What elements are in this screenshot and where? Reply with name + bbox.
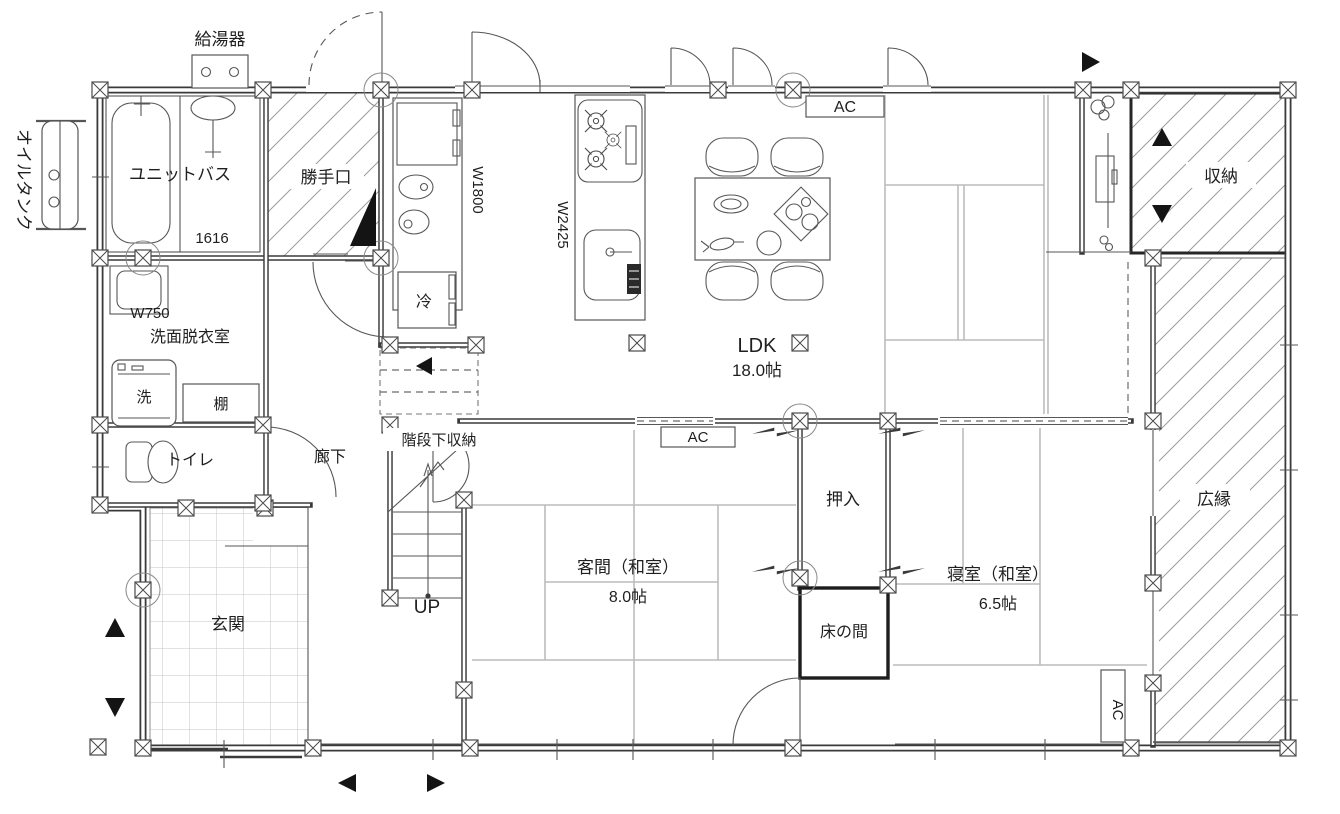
kaidan-shita-label: 階段下収納 (401, 432, 476, 449)
wash-counter-dim: W1800 (469, 166, 486, 214)
ac-label-top: AC (834, 99, 856, 116)
appliance-icon (397, 103, 457, 165)
floor-plan-drawing: オイルタンク 給湯器 ユニットバス 1616 勝手口 W1800 W2425 冷… (0, 0, 1340, 814)
ldk-size: 18.0帖 (732, 361, 782, 380)
kitchen-counter-dim: W2425 (554, 201, 571, 249)
refrigerator-label: 冷 (416, 293, 432, 311)
oil-tank (36, 121, 86, 229)
rouka-label: 廊下 (314, 448, 346, 466)
ac-label-mid: AC (688, 429, 709, 446)
floor-plan-page: オイルタンク 給湯器 ユニットバス 1616 勝手口 W1800 W2425 冷… (0, 0, 1340, 814)
oshiire-label: 押入 (826, 490, 860, 509)
kyakuma-label: 客間（和室） (577, 558, 679, 577)
shinshitsu-label: 寝室（和室） (947, 564, 1049, 584)
ldk-label: LDK (738, 335, 778, 357)
tokonoma-label: 床の間 (820, 623, 868, 641)
genkan-label: 玄関 (211, 615, 245, 634)
unit-bath-label: ユニットバス (129, 165, 231, 184)
shinshitsu-size: 6.5帖 (979, 595, 1017, 613)
water-heater-icon (192, 55, 248, 88)
shuno-label: 収納 (1204, 167, 1238, 186)
unit-bath-size: 1616 (195, 230, 228, 247)
shelf-label: 棚 (213, 396, 228, 413)
dining-table-icon (695, 178, 830, 260)
kyakuma-size: 8.0帖 (609, 588, 647, 606)
basin-icon (399, 210, 429, 234)
senmen-label: 洗面脱衣室 (150, 328, 230, 346)
oil-tank-label: オイルタンク (14, 129, 33, 231)
water-heater (192, 55, 248, 88)
senmen-width: W750 (130, 305, 169, 322)
ac-label-right: AC (1109, 700, 1126, 721)
hiroen-label: 広縁 (1197, 490, 1231, 509)
washer-label: 洗 (136, 389, 151, 406)
bath-sink-icon (191, 96, 235, 120)
up-label: UP (414, 597, 440, 618)
katteguchi-label: 勝手口 (301, 168, 352, 187)
toilet-label: トイレ (166, 452, 214, 469)
water-heater-label: 給湯器 (195, 30, 246, 49)
